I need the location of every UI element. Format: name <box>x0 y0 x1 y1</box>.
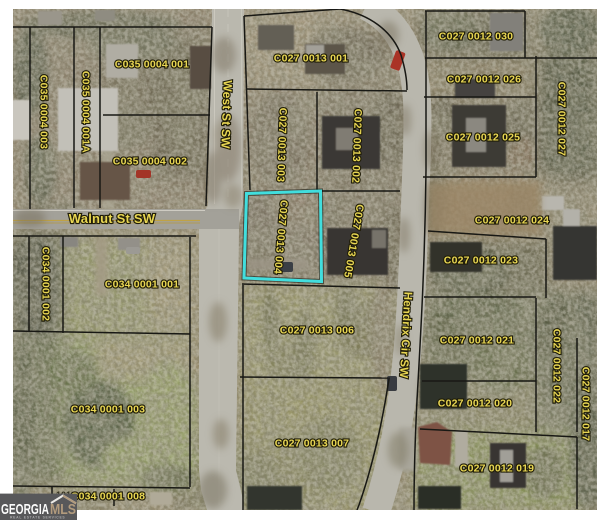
svg-text:C027 0013 001: C027 0013 001 <box>274 53 348 65</box>
svg-text:C027 0012 025: C027 0012 025 <box>446 132 520 144</box>
svg-text:C027 0012 017: C027 0012 017 <box>580 367 592 441</box>
svg-text:C027 0013 007: C027 0013 007 <box>275 438 349 450</box>
svg-text:C035 0004 001A: C035 0004 001A <box>80 71 92 153</box>
svg-text:C034 0001 001: C034 0001 001 <box>105 279 179 291</box>
svg-text:Walnut St SW: Walnut St SW <box>69 211 156 226</box>
svg-text:C027 0013 006: C027 0013 006 <box>280 325 354 337</box>
svg-text:C027 0012 020: C027 0012 020 <box>438 398 512 410</box>
svg-text:C034 0001 002: C034 0001 002 <box>40 247 52 321</box>
svg-text:C027 0012 027: C027 0012 027 <box>556 82 568 156</box>
svg-text:C035 0004 001: C035 0004 001 <box>115 59 189 71</box>
svg-text:C027 0012 024: C027 0012 024 <box>475 215 549 227</box>
svg-text:C035 0004 003: C035 0004 003 <box>38 75 50 149</box>
svg-text:C027 0012 019: C027 0012 019 <box>460 463 534 475</box>
svg-text:C027 0012 026: C027 0012 026 <box>447 74 521 86</box>
svg-text:C027 0012 023: C027 0012 023 <box>444 255 518 267</box>
svg-text:C034 0001 008: C034 0001 008 <box>71 491 145 503</box>
svg-text:C027 0012 021: C027 0012 021 <box>440 335 514 347</box>
svg-text:C034 0001 003: C034 0001 003 <box>71 404 145 416</box>
svg-text:West St SW: West St SW <box>218 80 234 149</box>
svg-text:REAL ESTATE SERVICES: REAL ESTATE SERVICES <box>10 515 65 519</box>
svg-text:C027 0012 022: C027 0012 022 <box>551 329 563 403</box>
svg-text:C027 0012 030: C027 0012 030 <box>439 31 513 43</box>
svg-text:C035 0004 002: C035 0004 002 <box>113 156 187 168</box>
